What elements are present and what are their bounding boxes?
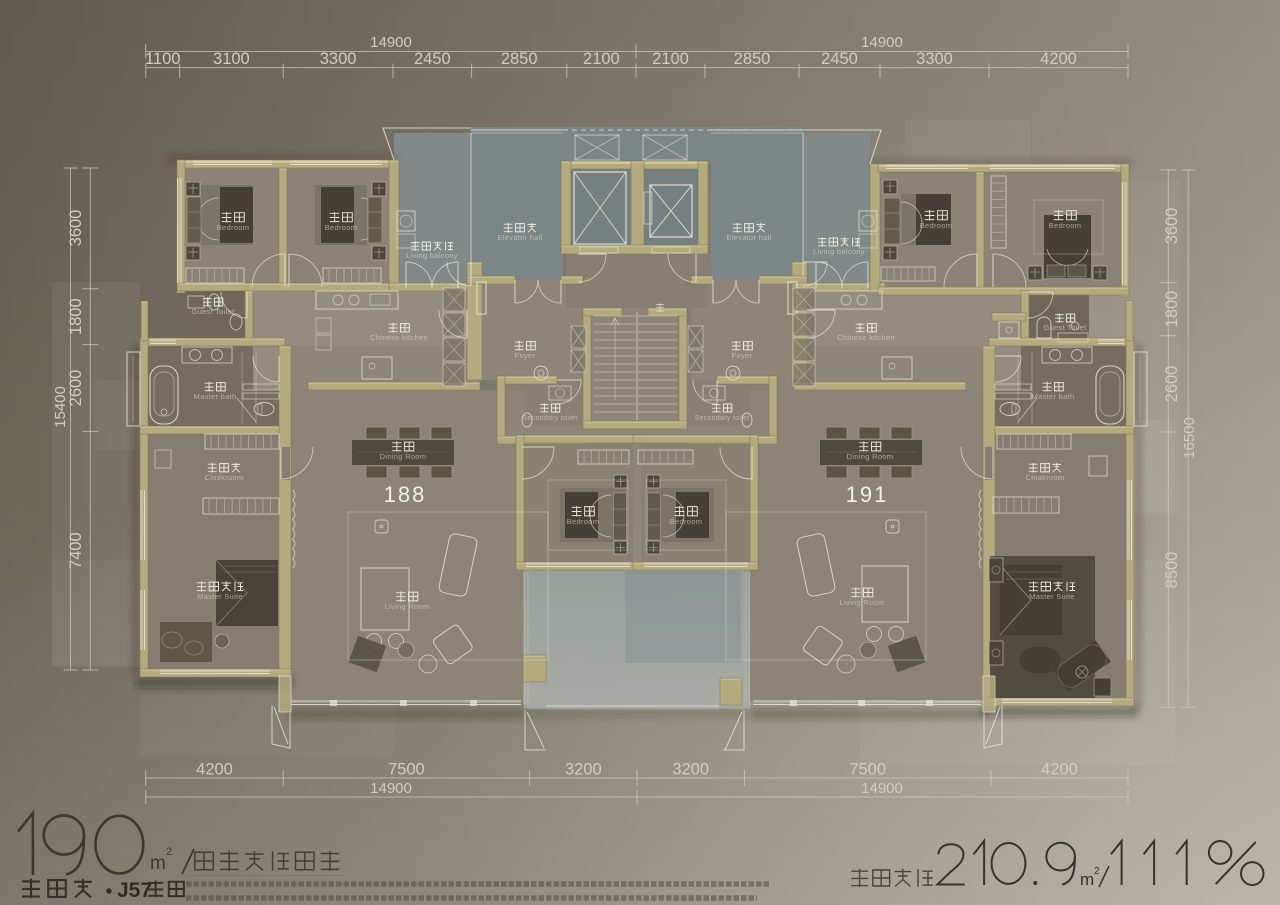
svg-text:Cloakroom: Cloakroom [205,473,244,482]
svg-text:Guest Toilet: Guest Toilet [1043,323,1087,332]
svg-text:7400: 7400 [67,532,85,569]
svg-text:4200: 4200 [1041,761,1078,779]
svg-text:8500: 8500 [1163,552,1181,589]
svg-text:Bedroom: Bedroom [920,221,953,230]
svg-text:Secondary toilet: Secondary toilet [523,415,578,422]
svg-text:J57: J57 [117,879,152,902]
svg-text:3200: 3200 [672,761,709,779]
svg-text:Master bath: Master bath [194,392,237,401]
svg-text:14900: 14900 [370,34,412,51]
svg-text:2600: 2600 [1163,366,1181,403]
svg-text:Chinese kitchen: Chinese kitchen [370,333,428,342]
svg-text:3300: 3300 [320,50,357,68]
svg-text:Secondary toilet: Secondary toilet [695,415,750,422]
svg-text:191: 191 [846,482,889,507]
svg-text:Living Room: Living Room [385,602,430,611]
svg-text:2850: 2850 [501,50,538,68]
svg-text:2100: 2100 [652,50,689,68]
svg-text:Bedroom: Bedroom [1049,221,1082,230]
svg-text:Master bath: Master bath [1032,392,1075,401]
svg-text:Living balcony: Living balcony [813,247,865,256]
svg-text:2450: 2450 [414,50,451,68]
svg-text:Bedroom: Bedroom [217,223,250,232]
svg-text:188: 188 [384,482,427,507]
svg-text:3100: 3100 [213,50,250,68]
svg-text:3300: 3300 [916,50,953,68]
svg-text:4200: 4200 [1040,50,1077,68]
svg-text:2850: 2850 [734,50,771,68]
svg-text:Elevator hall: Elevator hall [497,233,542,242]
svg-text:Bedroom: Bedroom [567,517,600,526]
svg-text:Elevator hall: Elevator hall [726,233,771,242]
svg-text:3600: 3600 [1163,208,1181,245]
svg-text:7500: 7500 [388,761,425,779]
svg-text:Dining Room: Dining Room [847,452,894,461]
svg-text:2: 2 [1094,866,1100,877]
svg-text:7500: 7500 [849,761,886,779]
svg-text:4200: 4200 [196,761,233,779]
svg-text:14900: 14900 [370,780,412,797]
svg-text:2100: 2100 [583,50,620,68]
svg-text:Foyer: Foyer [732,351,753,360]
svg-text:Cloakroom: Cloakroom [1026,473,1065,482]
svg-text:Guest Toilet: Guest Toilet [191,307,235,316]
svg-text:Living balcony: Living balcony [406,251,458,260]
svg-text:16500: 16500 [1181,417,1198,459]
svg-text:2450: 2450 [821,50,858,68]
svg-text:Bedroom: Bedroom [325,223,358,232]
svg-text:2600: 2600 [67,370,85,407]
svg-text:2: 2 [166,846,172,858]
svg-text:3600: 3600 [67,210,85,247]
svg-text:14900: 14900 [861,34,903,51]
svg-text:1100: 1100 [145,50,180,68]
svg-text:Master Suite: Master Suite [1029,592,1075,601]
svg-text:Bedroom: Bedroom [670,517,703,526]
svg-text:m: m [1080,870,1094,889]
svg-text:Dining Room: Dining Room [380,452,427,461]
svg-text:3200: 3200 [565,761,602,779]
svg-text:1800: 1800 [1163,291,1181,328]
svg-text:14900: 14900 [861,780,903,797]
svg-text:Foyer: Foyer [515,351,536,360]
svg-text:Living Room: Living Room [840,598,885,607]
svg-text:Master Suite: Master Suite [197,592,243,601]
svg-text:1800: 1800 [67,298,85,335]
svg-text:m: m [150,853,166,874]
svg-text:Chinese kitchen: Chinese kitchen [837,333,895,342]
